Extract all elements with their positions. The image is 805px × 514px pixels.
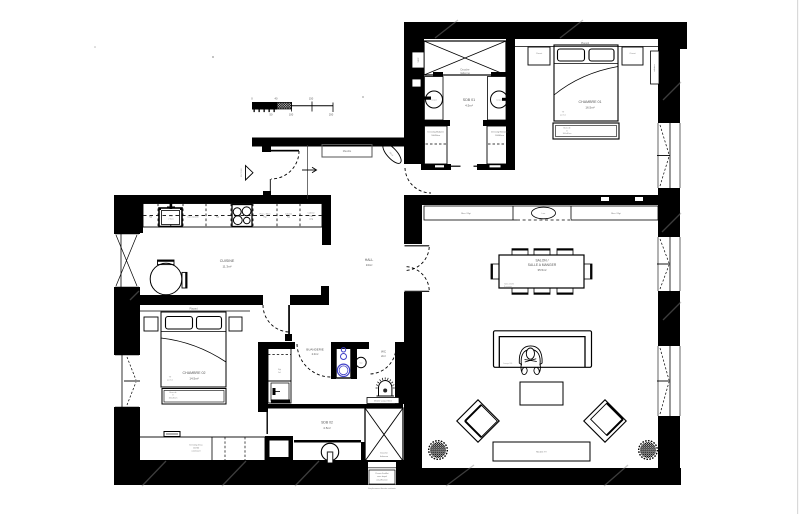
svg-text:11.3m²: 11.3m² xyxy=(222,265,231,269)
svg-text:SALON /: SALON / xyxy=(535,259,548,263)
svg-text:lave vaisselle: lave vaisselle xyxy=(187,217,198,219)
svg-text:anti-effraction: anti-effraction xyxy=(376,478,387,481)
svg-text:SDB 02: SDB 02 xyxy=(321,421,333,425)
svg-text:2 bacs: 2 bacs xyxy=(168,218,173,220)
svg-text:Meu / Rgt: Meu / Rgt xyxy=(611,212,621,215)
svg-text:au mur: au mur xyxy=(560,113,566,116)
svg-text:Emplacement fenetre existante: Emplacement fenetre existante xyxy=(368,487,396,490)
svg-text:Placard: Placard xyxy=(189,308,198,311)
svg-text:160x40cm: 160x40cm xyxy=(169,397,178,399)
svg-text:14.5m²: 14.5m² xyxy=(189,377,198,381)
svg-text:Rgt: Rgt xyxy=(216,216,220,219)
svg-text:Frigo: Frigo xyxy=(309,215,313,218)
svg-text:160/60cm: 160/60cm xyxy=(495,135,504,137)
svg-text:Rgt: Rgt xyxy=(149,216,153,219)
svg-text:13m²: 13m² xyxy=(366,263,373,267)
svg-text:BUANDERIE: BUANDERIE xyxy=(306,348,324,352)
svg-text:coulissant: coulissant xyxy=(192,450,201,453)
svg-text:Banc de: Banc de xyxy=(564,128,571,130)
svg-text:SALLE A MANGER: SALLE A MANGER xyxy=(528,263,557,267)
svg-text:Meuble vasque 80cm: Meuble vasque 80cm xyxy=(374,401,392,403)
svg-text:35.5m²: 35.5m² xyxy=(538,268,547,272)
svg-text:4.5m²: 4.5m² xyxy=(323,426,330,430)
svg-text:CHAMBRE 02: CHAMBRE 02 xyxy=(183,371,206,375)
svg-text:cong: cong xyxy=(309,219,313,221)
svg-text:4.5m²: 4.5m² xyxy=(465,104,473,108)
svg-text:Meu / Rgt: Meu / Rgt xyxy=(461,212,471,215)
svg-text:Evier: Evier xyxy=(169,216,173,218)
svg-text:Rgt: Rgt xyxy=(264,216,267,219)
svg-text:Dressing Monsieur: Dressing Monsieur xyxy=(491,132,508,134)
svg-text:Italienne: Italienne xyxy=(460,71,470,75)
svg-text:Italienne: Italienne xyxy=(380,455,389,458)
svg-text:Douche: Douche xyxy=(380,453,388,455)
svg-text:Col.: Col. xyxy=(278,372,282,374)
svg-text:vasque: vasque xyxy=(327,452,333,454)
svg-text:Colonne: Colonne xyxy=(307,213,314,215)
svg-text:lave: lave xyxy=(360,363,363,365)
svg-text:WC: WC xyxy=(381,350,387,354)
svg-text:verre depoli: verre depoli xyxy=(377,475,387,478)
svg-text:Canape 240: Canape 240 xyxy=(503,363,512,365)
svg-text:Rgt: Rgt xyxy=(287,216,290,219)
svg-text:VMC: VMC xyxy=(418,57,420,62)
svg-text:200: 200 xyxy=(329,113,334,117)
svg-text:16.5m²: 16.5m² xyxy=(585,106,594,110)
svg-text:8 couverts: 8 couverts xyxy=(504,285,512,288)
svg-text:Chevet: Chevet xyxy=(629,52,636,55)
svg-text:Lum.: Lum. xyxy=(541,213,546,215)
svg-text:Chevet: Chevet xyxy=(536,52,543,55)
svg-text:ENTREE: ENTREE xyxy=(241,168,243,177)
svg-text:Banc de: Banc de xyxy=(170,392,177,394)
svg-text:Dressing d'eau: Dressing d'eau xyxy=(189,445,202,447)
svg-text:CHAMBRE 01: CHAMBRE 01 xyxy=(579,100,602,104)
svg-text:2.0m²: 2.0m² xyxy=(312,352,319,356)
svg-text:vasque: vasque xyxy=(496,100,502,102)
svg-text:160/60cm: 160/60cm xyxy=(431,135,440,137)
svg-text:HALL: HALL xyxy=(365,258,374,262)
svg-text:Four + Micro: Four + Micro xyxy=(260,213,271,216)
svg-text:SDB 01: SDB 01 xyxy=(463,98,475,102)
svg-text:Meuble: Meuble xyxy=(343,149,352,153)
svg-text:radiateur: radiateur xyxy=(653,64,656,72)
svg-text:CUISINE: CUISINE xyxy=(220,259,235,263)
svg-text:150: 150 xyxy=(309,97,314,101)
svg-text:Prevoir Soufflet: Prevoir Soufflet xyxy=(376,472,389,475)
svg-text:Meuble TV: Meuble TV xyxy=(536,452,547,454)
svg-text:au mur: au mur xyxy=(167,378,173,381)
svg-text:120/60: 120/60 xyxy=(193,448,200,450)
svg-text:100: 100 xyxy=(289,113,294,117)
svg-text:Rgt: Rgt xyxy=(278,368,281,371)
svg-text:Colonne: Colonne xyxy=(285,214,292,216)
svg-text:vasque: vasque xyxy=(431,100,437,102)
svg-text:160x40cm: 160x40cm xyxy=(563,133,572,135)
svg-text:2m²: 2m² xyxy=(381,354,386,358)
svg-text:Dressing Madame: Dressing Madame xyxy=(428,132,445,134)
